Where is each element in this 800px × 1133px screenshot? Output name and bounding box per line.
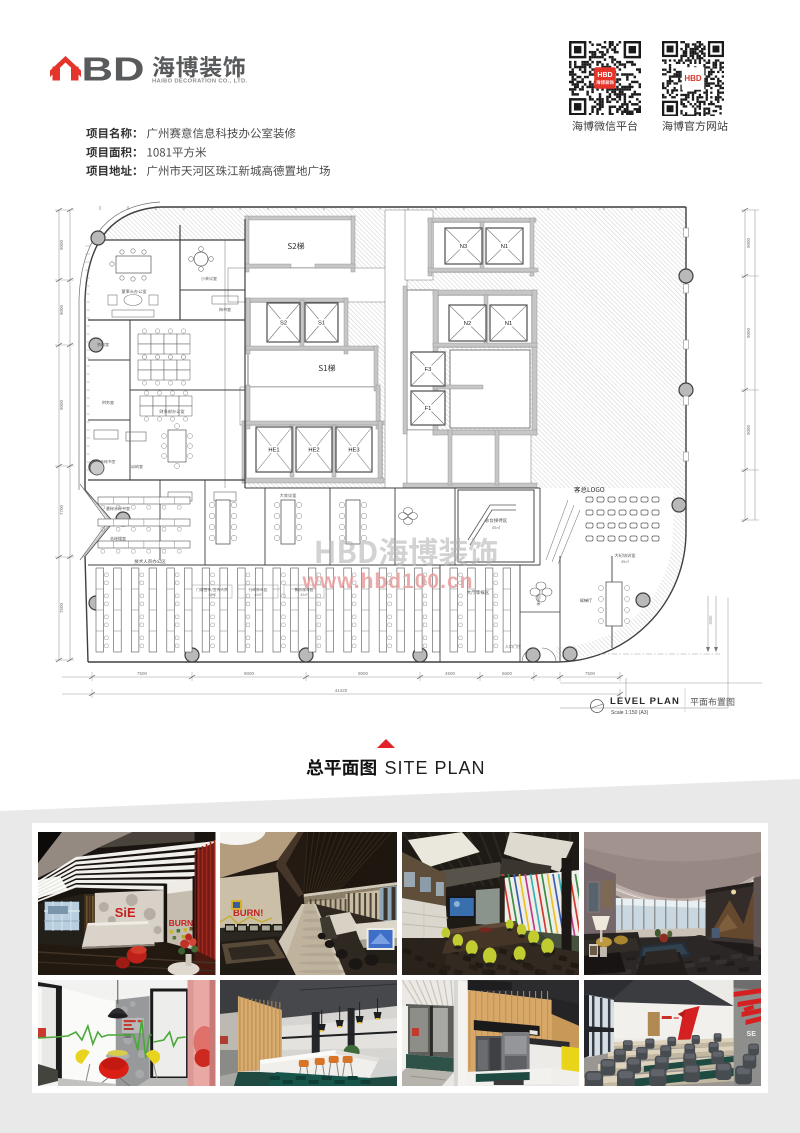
svg-text:SiE: SiE — [115, 905, 136, 920]
svg-text:BURN!: BURN! — [169, 918, 196, 928]
svg-text:SITE PLAN: SITE PLAN — [385, 758, 486, 778]
svg-text:SE: SE — [746, 1031, 756, 1038]
